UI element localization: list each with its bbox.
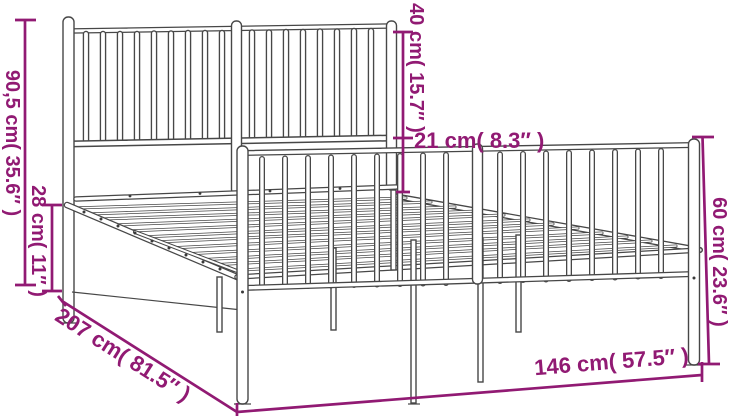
headboard-left-post bbox=[63, 17, 74, 323]
overall-height-label: 90,5 cm( 35.6″ ) bbox=[1, 70, 23, 216]
headboard-gap-label: 21 cm( 8.3″ ) bbox=[414, 128, 544, 153]
footboard-right-post bbox=[689, 139, 700, 365]
footboard-height-label: 60 cm( 23.6″ ) bbox=[708, 197, 730, 327]
dimension-width: 146 cm( 57.5″ ) bbox=[237, 343, 702, 416]
length-label: 207 cm( 81.5″ ) bbox=[51, 303, 195, 407]
bed-frame-dimension-diagram: 90,5 cm( 35.6″ ) 28 cm( 11″ ) 40 cm( 15.… bbox=[0, 0, 735, 420]
footboard-left-post bbox=[237, 146, 248, 404]
dimension-line bbox=[58, 296, 237, 412]
headboard bbox=[60, 17, 397, 323]
dimension-platform-height: 28 cm( 11″ ) bbox=[27, 185, 62, 297]
dimension-length: 207 cm( 81.5″ ) bbox=[51, 296, 237, 412]
width-label: 146 cm( 57.5″ ) bbox=[533, 343, 689, 380]
headboard-slats bbox=[86, 31, 371, 140]
headboard-right-post bbox=[387, 21, 397, 190]
bed-frame-drawing: 90,5 cm( 35.6″ ) 28 cm( 11″ ) 40 cm( 15.… bbox=[0, 0, 735, 420]
footboard-center-post bbox=[473, 144, 483, 284]
platform-height-label: 28 cm( 11″ ) bbox=[27, 185, 49, 297]
headboard-top-label: 40 cm( 15.7″ ) bbox=[405, 3, 427, 133]
dimension-headboard-top: 40 cm( 15.7″ ) bbox=[393, 3, 427, 138]
